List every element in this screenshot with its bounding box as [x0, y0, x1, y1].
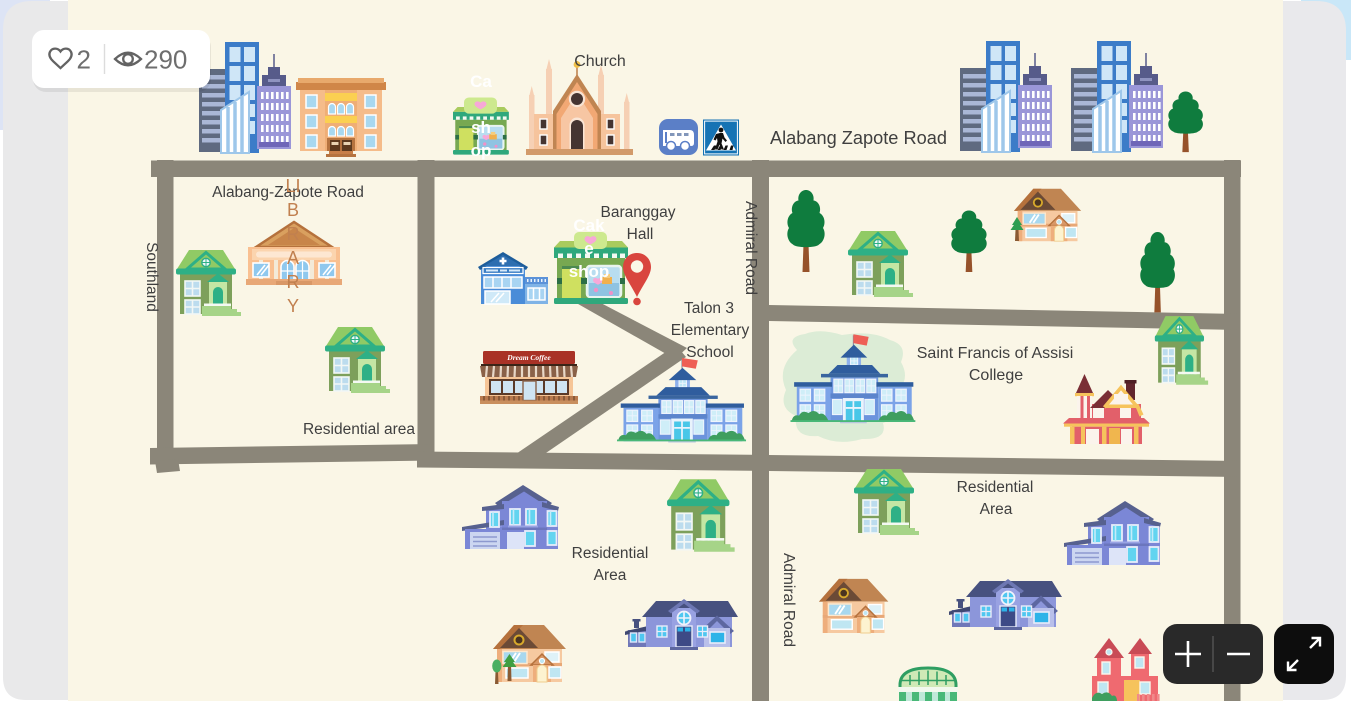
svg-text:Admiral Road: Admiral Road	[780, 553, 797, 647]
svg-text:B: B	[287, 200, 299, 220]
svg-text:College: College	[969, 367, 1023, 384]
svg-text:op: op	[471, 141, 492, 160]
svg-text:shop: shop	[569, 262, 610, 281]
svg-text:Area: Area	[594, 567, 627, 584]
svg-text:Residential: Residential	[572, 545, 649, 562]
svg-text:Baranggay: Baranggay	[601, 204, 676, 221]
svg-text:Southland: Southland	[143, 242, 160, 312]
svg-text:Talon 3: Talon 3	[684, 300, 734, 317]
svg-text:Church: Church	[574, 53, 626, 70]
svg-text:2: 2	[77, 45, 91, 75]
svg-text:Residential area: Residential area	[303, 421, 415, 438]
svg-text:Y: Y	[287, 296, 299, 316]
svg-text:Hall: Hall	[627, 226, 654, 243]
svg-text:Elementary: Elementary	[671, 322, 750, 339]
svg-text:sh: sh	[471, 118, 491, 137]
svg-text:Cak: Cak	[573, 216, 605, 235]
svg-text:School: School	[686, 344, 733, 361]
svg-text:Saint Francis of Assisi: Saint Francis of Assisi	[917, 345, 1074, 362]
svg-text:R: R	[287, 224, 300, 244]
svg-text:Area: Area	[980, 501, 1013, 518]
svg-text:A: A	[287, 248, 299, 268]
svg-text:Ca: Ca	[470, 72, 492, 91]
svg-text:R: R	[287, 272, 300, 292]
svg-text:Admiral Road: Admiral Road	[742, 201, 759, 295]
svg-text:Residential: Residential	[957, 479, 1034, 496]
svg-text:290: 290	[144, 45, 187, 75]
svg-text:e: e	[584, 239, 593, 258]
svg-text:Alabang Zapote Road: Alabang Zapote Road	[770, 128, 947, 148]
svg-text:LI: LI	[285, 176, 300, 196]
